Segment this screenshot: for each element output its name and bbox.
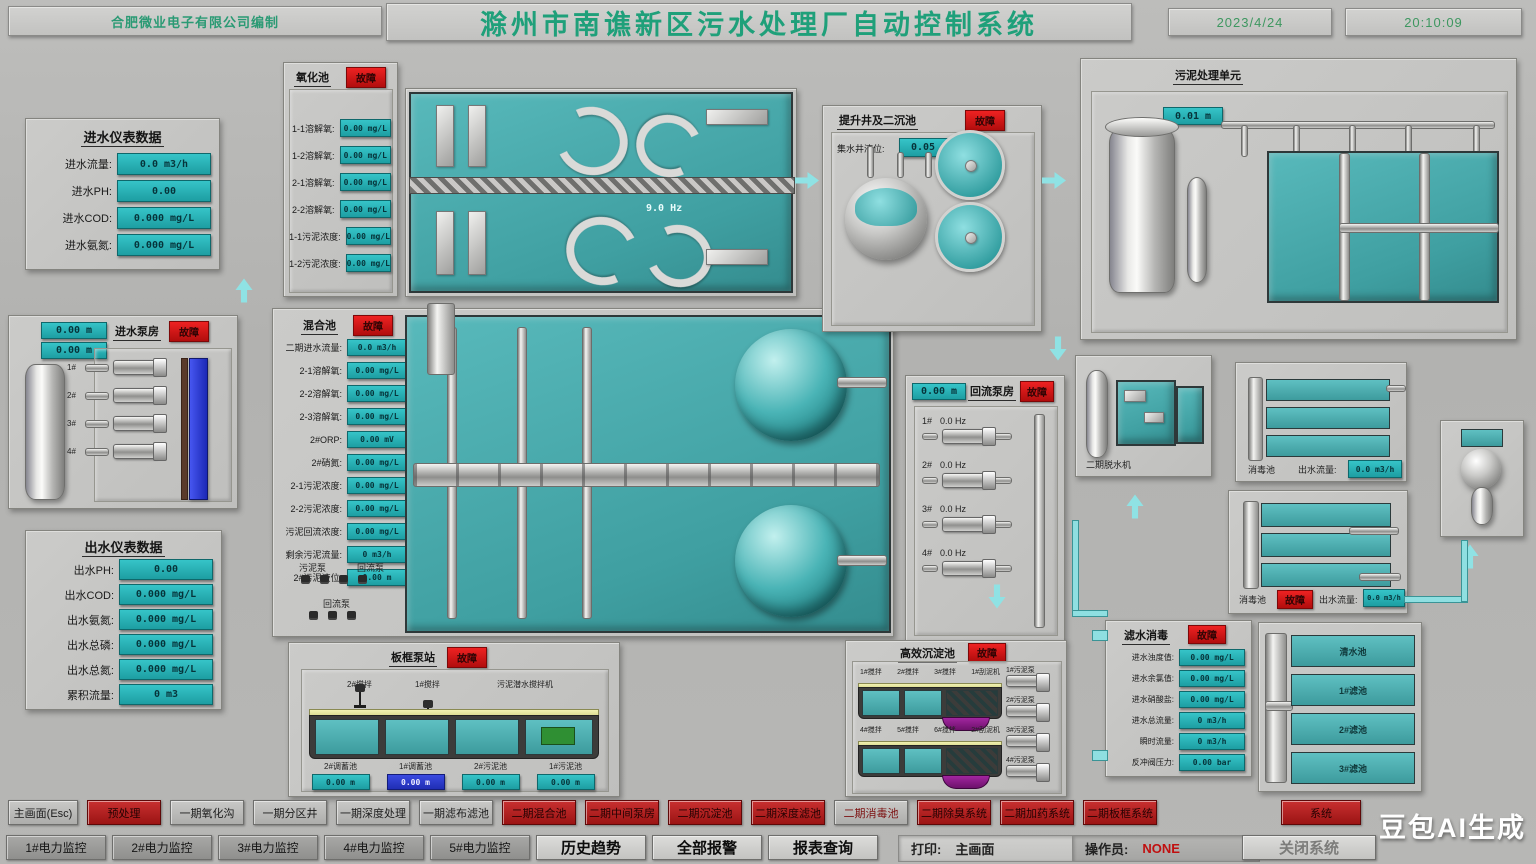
dewatering-tank-2	[1176, 386, 1204, 444]
sphere1-arm-pipe	[837, 377, 887, 388]
pump-number-label: 1#	[922, 416, 932, 426]
pump-icon[interactable]	[1006, 705, 1042, 717]
sludge-silo-lid	[1105, 117, 1179, 137]
disinfection-panel-2: 消毒池 故障 出水流量: 0.0 m3/h	[1228, 490, 1408, 614]
pump-dot-icon[interactable]	[328, 611, 337, 618]
operator-label: 操作员:	[1085, 839, 1128, 858]
pump-icon[interactable]	[113, 388, 159, 403]
pump-freq-label: 0.0 Hz	[940, 460, 966, 470]
meter-row: 出水氨氮: 0.000 mg/L	[34, 609, 213, 630]
pipe-segment	[922, 521, 938, 528]
meter-row: 进水余氯值: 0.00 mg/L	[1110, 670, 1245, 687]
inlet-level-1: 0.00 m	[41, 322, 107, 339]
meter-row: 瞬时流量: 0 m3/h	[1110, 733, 1245, 750]
meter-row: 1-1溶解氧: 0.00 mg/L	[292, 119, 391, 137]
disinfection-status-badge: 故障	[1277, 590, 1313, 609]
frame-station-status-badge: 故障	[447, 647, 487, 668]
tank-level-value: 0.00 m	[387, 774, 445, 790]
meter-row: 2-1溶解氧: 0.00 mg/L	[279, 362, 407, 379]
pump-dot-icon[interactable]	[320, 575, 329, 582]
sedimentation-panel: 高效沉淀池 故障 1#搅拌2#搅拌3#搅拌1#刮泥机 4#搅拌5#搅拌6#搅拌2…	[845, 640, 1067, 797]
mixing-block-panel: 混合池 故障 二期进水流量: 0.0 m3/h 2-1溶解氧: 0.00 mg/…	[272, 308, 894, 637]
meter-value: 0.000 mg/L	[119, 609, 213, 630]
meter-row: 进水硝酸盐: 0.00 mg/L	[1110, 691, 1245, 708]
outflow-meter-panel: 出水仪表数据 出水PH: 0.00 出水COD: 0.000 mg/L 出水氨氮…	[25, 530, 222, 710]
tank1-freq-label: 9.0 Hz	[646, 203, 682, 214]
tank-label: 2#调蓄池	[324, 761, 357, 772]
pump-body	[1471, 487, 1493, 525]
tank-frame-beam	[1339, 223, 1499, 233]
return-pump-row: 1# 0.0 Hz	[922, 416, 1012, 444]
meter-row: 2-1污泥浓度: 0.00 mg/L	[279, 477, 407, 494]
sed-cell	[904, 748, 942, 774]
dewatering-panel: 二期脱水机	[1075, 355, 1212, 477]
weir-plate	[1359, 573, 1401, 581]
sed-cell	[862, 748, 900, 774]
meter-value: 0.00 mg/L	[340, 146, 391, 164]
sedimentation-status-badge: 故障	[968, 643, 1006, 662]
meter-value: 0.0 m3/h	[347, 339, 407, 356]
meter-row: 进水氨氮: 0.000 mg/L	[34, 234, 211, 256]
nav-button[interactable]: 一期分区井	[253, 800, 327, 825]
inlet-pump-row: 2#	[67, 388, 187, 403]
meter-value: 0.00 mg/L	[340, 119, 391, 137]
outflow-panel-title: 出水仪表数据	[82, 540, 164, 557]
mixer-label: 1#搅拌	[415, 679, 440, 690]
meter-value: 0 m3	[119, 684, 213, 705]
machine-part	[1144, 412, 1164, 423]
inlet-pump-rows: 1# 2# 3# 4#	[67, 360, 187, 459]
filter-tank: 1#滤池	[1291, 674, 1415, 706]
pump-icon[interactable]	[113, 360, 159, 375]
pump-number-label: 1#	[67, 363, 81, 372]
tank1-aerator	[468, 211, 486, 275]
cyan-pipe	[1072, 610, 1108, 617]
meter-label: 进水PH:	[72, 183, 112, 199]
sed-lamella-cell	[946, 690, 998, 716]
pump-icon[interactable]	[942, 473, 988, 488]
meter-label: 2-2溶解氧:	[299, 387, 342, 400]
pump-freq-label: 0.0 Hz	[940, 548, 966, 558]
flow-arrow-up	[236, 279, 253, 303]
submersible-mixer-label: 污泥潜水搅拌机	[497, 679, 553, 690]
channel-frame	[1243, 501, 1259, 589]
pump-number-label: 2#	[67, 391, 81, 400]
tank1-aerator	[436, 211, 454, 275]
meter-value: 0.00 mg/L	[347, 362, 407, 379]
frame-tank-readouts: 2#调蓄池 0.00 m 1#调蓄池 0.00 m 2#污泥池 0.00 m 1…	[303, 761, 603, 790]
meter-label: 1-2溶解氧:	[292, 149, 335, 162]
meter-label: 2-2污泥浓度:	[290, 502, 342, 515]
pump-freq-label: 0.0 Hz	[940, 504, 966, 514]
return-header-pipe	[1034, 414, 1045, 628]
aeration-tank-2	[405, 315, 891, 633]
filter-inlet-branch	[1265, 701, 1293, 711]
sed-pump: 1#污泥泵	[1006, 665, 1042, 687]
dewatering-tank	[1116, 380, 1176, 446]
tank-readout: 2#污泥池 0.00 m	[453, 761, 528, 790]
meter-label: 反冲阀压力:	[1132, 757, 1174, 768]
meter-label: 进水硝酸盐:	[1132, 694, 1174, 705]
meter-label: 2-1溶解氧:	[299, 364, 342, 377]
meter-label: 进水余氯值:	[1132, 673, 1174, 684]
meter-row: 进水浊度值: 0.00 mg/L	[1110, 649, 1245, 666]
pump-icon[interactable]	[942, 517, 988, 532]
oxidation-panel: 氧化池 故障 1-1溶解氧: 0.00 mg/L 1-2溶解氧: 0.00 mg…	[283, 62, 398, 297]
meter-value: 0.00 mg/L	[340, 173, 391, 191]
dewatering-label: 二期脱水机	[1086, 458, 1131, 471]
filter-tank: 清水池	[1291, 635, 1415, 667]
meter-label: 污泥回流浓度:	[285, 525, 342, 538]
meter-label: 2#ORP:	[310, 435, 342, 445]
mixer-label: 2#刮泥机	[971, 725, 1000, 735]
nav-button[interactable]: 二期中间泵房	[585, 800, 659, 825]
tank-label: 1#调蓄池	[399, 761, 432, 772]
uv-channel	[1261, 533, 1391, 557]
filter-tank-rows: 清水池 1#滤池 2#滤池 3#滤池	[1291, 635, 1415, 784]
meter-label: 进水流量:	[65, 156, 112, 172]
sed-cell	[862, 690, 900, 716]
pump-icon[interactable]	[1006, 765, 1042, 777]
meter-value: 0.00 mg/L	[347, 523, 407, 540]
meter-label: 出水总磷:	[67, 637, 114, 653]
meter-label: 瞬时流量:	[1140, 736, 1174, 747]
mixer-label: 1#刮泥机	[971, 667, 1000, 677]
mixer-label: 6#搅拌	[934, 725, 956, 735]
sphere2-arm-pipe	[837, 555, 887, 566]
inlet-pump-title: 进水泵房	[113, 323, 161, 341]
print-value: 主画面	[955, 839, 994, 858]
tank1-weir	[706, 249, 768, 265]
inlet-pump-row: 4#	[67, 444, 187, 459]
pump-dot-icon[interactable]	[339, 575, 348, 582]
meter-label: 剩余污泥流量:	[285, 548, 342, 561]
nav-button[interactable]: 全部报警	[652, 835, 762, 860]
filter-info-panel: 滤水消毒 故障 进水浊度值: 0.00 mg/L 进水余氯值: 0.00 mg/…	[1105, 620, 1252, 777]
pump-freq-label: 0.0 Hz	[940, 416, 966, 426]
mixer-label: 5#搅拌	[897, 725, 919, 735]
clarifier-center	[965, 160, 977, 172]
meter-value: 0.00 mV	[347, 431, 407, 448]
nav-button[interactable]: 一期氧化沟	[170, 800, 244, 825]
return-pump-label-2: 回流泵	[323, 597, 350, 610]
nav-button[interactable]: 1#电力监控	[6, 835, 106, 860]
tank-cell	[315, 719, 379, 755]
pump-icon[interactable]	[1006, 735, 1042, 747]
sludge-pump-icons	[301, 575, 367, 582]
meter-label: 进水浊度值:	[1132, 652, 1174, 663]
pump-number-label: 3#	[922, 504, 932, 514]
time-box: 20:10:09	[1345, 8, 1522, 36]
pump-icon[interactable]	[942, 561, 988, 576]
meter-value: 0.00 bar	[1179, 754, 1245, 771]
submersible-mixer-box	[541, 727, 575, 745]
tank1-walkway	[409, 177, 795, 194]
nav-button[interactable]: 4#电力监控	[324, 835, 424, 860]
nav-button[interactable]: 5#电力监控	[430, 835, 530, 860]
flow-label: 出水流量:	[1319, 593, 1358, 606]
flow-value: 0.0 m3/h	[1363, 589, 1405, 607]
tank-readout: 1#污泥池 0.00 m	[528, 761, 603, 790]
weir-plate	[1349, 527, 1399, 535]
pump-icon[interactable]	[113, 416, 159, 431]
cyan-pipe-stub	[1092, 750, 1108, 761]
pump-icon[interactable]	[942, 429, 988, 444]
probe-pipe	[867, 146, 874, 178]
meter-label: 2#硝氮:	[311, 456, 342, 469]
pump-dot-icon[interactable]	[309, 611, 318, 618]
sludge-pump-label: 污泥泵	[299, 561, 326, 574]
filter-info-title: 滤水消毒	[1122, 627, 1170, 645]
level-gauge-bar	[189, 358, 208, 500]
sludge-silo	[1109, 129, 1175, 293]
meter-row: 出水总磷: 0.000 mg/L	[34, 634, 213, 655]
sludge-unit-panel: 污泥处理单元 0.01 m	[1080, 58, 1517, 340]
oxidation-status-badge: 故障	[346, 67, 386, 88]
nav-button[interactable]: 2#电力监控	[112, 835, 212, 860]
grit-title: 提升井及二沉池	[837, 112, 918, 130]
meter-value: 0 m3/h	[1179, 733, 1245, 750]
meter-row: 出水总氮: 0.000 mg/L	[34, 659, 213, 680]
frame-pump-station-panel: 板框泵站 故障 2#搅拌 1#搅拌 污泥潜水搅拌机 2#调蓄池 0.00 m 1…	[288, 642, 620, 797]
meter-value: 0.00	[119, 559, 213, 580]
filter-info-rows: 进水浊度值: 0.00 mg/L 进水余氯值: 0.00 mg/L 进水硝酸盐:…	[1110, 649, 1245, 771]
inlet-pump-panel: 0.00 m 0.00 m 进水泵房 故障 1# 2# 3#	[8, 315, 238, 509]
meter-row: 2#ORP: 0.00 mV	[279, 431, 407, 448]
disinfection-panel-1: 消毒池 出水流量: 0.0 m3/h	[1235, 362, 1407, 482]
nav-button[interactable]: 二期消毒池	[834, 800, 908, 825]
pool-label: 消毒池	[1239, 593, 1266, 606]
mixing-title: 混合池	[301, 317, 338, 335]
frame-station-title: 板框泵站	[389, 649, 437, 667]
nav-button[interactable]: 一期滤布滤池	[419, 800, 493, 825]
meter-label: 累积流量:	[67, 687, 114, 703]
meter-value: 0.00 mg/L	[347, 408, 407, 425]
filter-tank: 3#滤池	[1291, 752, 1415, 784]
outlet-stub-pipe	[1386, 385, 1406, 392]
mixer-label: 1#搅拌	[860, 667, 882, 677]
filter-info-status-badge: 故障	[1188, 625, 1226, 644]
sed-lamella-cell	[946, 748, 998, 774]
pipe-segment	[85, 364, 109, 372]
meter-row: 反冲阀压力: 0.00 bar	[1110, 754, 1245, 771]
meter-row: 出水COD: 0.000 mg/L	[34, 584, 213, 605]
meter-row: 2#硝氮: 0.00 mg/L	[279, 454, 407, 471]
oxidation-rows: 1-1溶解氧: 0.00 mg/L 1-2溶解氧: 0.00 mg/L 2-1溶…	[292, 119, 391, 272]
pump-dot-icon[interactable]	[347, 611, 356, 618]
pump-dot-icon[interactable]	[301, 575, 310, 582]
nav-button[interactable]: 预处理	[87, 800, 161, 825]
sed-row2-labels: 4#搅拌5#搅拌6#搅拌2#刮泥机	[860, 725, 1000, 735]
pipe-segment	[922, 477, 938, 484]
outflow-rows: 出水PH: 0.00 出水COD: 0.000 mg/L 出水氨氮: 0.000…	[34, 559, 213, 705]
return-pump-title: 回流泵房	[968, 383, 1016, 401]
date-box: 2023/4/24	[1168, 8, 1332, 36]
meter-label: 1-1溶解氧:	[292, 122, 335, 135]
meter-label: 2-3溶解氧:	[299, 410, 342, 423]
meter-row: 累积流量: 0 m3	[34, 684, 213, 705]
pump-number-label: 2#	[922, 460, 932, 470]
flow-arrow-down	[1050, 337, 1067, 361]
close-system-button[interactable]: 关闭系统	[1242, 835, 1376, 860]
tank1-aerator	[436, 105, 454, 167]
meter-row: 进水流量: 0.0 m3/h	[34, 153, 211, 175]
meter-value: 0.00 mg/L	[1179, 691, 1245, 708]
meter-row: 2-2溶解氧: 0.00 mg/L	[279, 385, 407, 402]
return-pump-label: 回流泵	[357, 561, 384, 574]
mixer-label: 3#搅拌	[934, 667, 956, 677]
mixer-label: 4#搅拌	[860, 725, 882, 735]
grit-status-badge: 故障	[965, 110, 1005, 131]
uv-channel	[1266, 407, 1390, 429]
edge-pump-panel	[1440, 420, 1524, 537]
mixing-status-badge: 故障	[353, 315, 393, 336]
return-pump-row: 2# 0.0 Hz	[922, 460, 1012, 488]
uv-channel	[1261, 503, 1391, 527]
pump-dot-icon[interactable]	[358, 575, 367, 582]
tank-cell	[455, 719, 519, 755]
meter-value: 0.00 mg/L	[347, 454, 407, 471]
flow-arrow-right	[795, 172, 819, 189]
meter-label: 出水总氮:	[67, 662, 114, 678]
tank-level-value: 0.00 m	[537, 774, 595, 790]
page-title: 滁州市南谯新区污水处理厂自动控制系统	[480, 3, 1038, 42]
nav-button[interactable]: 3#电力监控	[218, 835, 318, 860]
pipe-segment	[85, 448, 109, 456]
cyan-pipe	[1072, 520, 1079, 617]
sludge-unit-title: 污泥处理单元	[1173, 67, 1243, 85]
meter-row: 2-2污泥浓度: 0.00 mg/L	[279, 500, 407, 517]
tank-cell	[385, 719, 449, 755]
nav-button[interactable]: 二期混合池	[502, 800, 576, 825]
nav-button[interactable]: 二期沉淀池	[668, 800, 742, 825]
grit-dome-water	[855, 188, 917, 226]
grit-dome	[845, 178, 927, 260]
return-pump-icons	[309, 611, 356, 618]
meter-label: 2-1污泥浓度:	[290, 479, 342, 492]
channel-frame	[1248, 377, 1263, 461]
clarifier-2	[935, 202, 1005, 272]
tank-readout: 2#调蓄池 0.00 m	[303, 761, 378, 790]
dewatering-pump-column	[1086, 370, 1108, 458]
meter-row: 出水PH: 0.00	[34, 559, 213, 580]
digester-sphere-1	[735, 329, 847, 441]
sludge-drop-pipe	[1241, 125, 1248, 157]
sed-pump-column: 1#污泥泵 2#污泥泵 3#污泥泵 4#污泥泵	[1006, 665, 1042, 777]
pump-number-label: 3#	[67, 419, 81, 428]
tank-readout: 1#调蓄池 0.00 m	[378, 761, 453, 790]
meter-value: 0 m3/h	[1179, 712, 1245, 729]
meter-row: 1-1污泥浓度: 0.00 mg/L	[292, 227, 391, 245]
mixer-icon[interactable]	[359, 691, 361, 707]
meter-label: 二期进水流量:	[285, 341, 342, 354]
filter-tank-label: 清水池	[1339, 645, 1366, 658]
nav-button[interactable]: 二期加药系统	[1000, 800, 1074, 825]
nav-button[interactable]: 二期深度滤池	[751, 800, 825, 825]
meter-value: 0.00 mg/L	[347, 477, 407, 494]
company-box: 合肥微业电子有限公司编制	[8, 6, 382, 36]
tank-label: 2#污泥池	[474, 761, 507, 772]
pump-label: 1#污泥泵	[1006, 665, 1035, 675]
cyan-pipe-stub	[1092, 630, 1108, 641]
machine-part	[1124, 390, 1146, 402]
nav-button[interactable]: 主画面(Esc)	[8, 800, 78, 825]
nav-button[interactable]: 报表查询	[768, 835, 878, 860]
meter-value: 0.00	[117, 180, 211, 202]
tank-level-value: 0.00 m	[462, 774, 520, 790]
sludge-holding-tank	[1267, 151, 1499, 303]
pipe-segment	[922, 565, 938, 572]
oxidation-title: 氧化池	[294, 69, 331, 87]
nav-button[interactable]: 历史趋势	[536, 835, 646, 860]
sed-cell	[904, 690, 942, 716]
sed-pump: 4#污泥泵	[1006, 755, 1042, 777]
pump-label: 3#污泥泵	[1006, 725, 1035, 735]
time-label: 20:10:09	[1404, 15, 1463, 30]
filter-tank-label: 3#滤池	[1339, 762, 1367, 775]
meter-value: 0.000 mg/L	[119, 634, 213, 655]
meter-value: 0.000 mg/L	[119, 584, 213, 605]
sludge-top-pipe	[1221, 121, 1495, 129]
uv-channel	[1266, 435, 1390, 457]
sludge-feed-column	[1187, 177, 1207, 283]
meter-row: 2-3溶解氧: 0.00 mg/L	[279, 408, 407, 425]
print-label: 打印:	[911, 839, 941, 858]
meter-label: 2-1溶解氧:	[292, 176, 335, 189]
meter-value: 0.000 mg/L	[117, 234, 211, 256]
title-box: 滁州市南谯新区污水处理厂自动控制系统	[386, 3, 1132, 41]
tank-level-value: 0.00 m	[312, 774, 370, 790]
flow-arrow-right	[1042, 172, 1066, 189]
tank1-weir	[706, 109, 768, 125]
return-pump-row: 3# 0.0 Hz	[922, 504, 1012, 532]
digester-sphere-2	[735, 505, 847, 617]
clarifier-center	[965, 232, 977, 244]
return-pump-panel: 0.00 m 回流泵房 故障 1# 0.0 Hz 2# 0.0 Hz	[905, 375, 1065, 642]
clarifier-1	[935, 130, 1005, 200]
meter-label: 1-1污泥浓度:	[289, 230, 341, 243]
meter-value: 0.00 mg/L	[347, 500, 407, 517]
cyan-pipe	[1404, 596, 1468, 603]
meter-row: 1-2污泥浓度: 0.00 mg/L	[292, 254, 391, 272]
meter-row: 2-2溶解氧: 0.00 mg/L	[292, 200, 391, 218]
meter-value: 0.000 mg/L	[117, 207, 211, 229]
pump-number-label: 4#	[67, 447, 81, 456]
meter-label: 进水总流量:	[1132, 715, 1174, 726]
sed-hopper	[942, 775, 990, 789]
tank2-main-pipe	[413, 463, 880, 487]
meter-row: 2-1溶解氧: 0.00 mg/L	[292, 173, 391, 191]
meter-label: 出水COD:	[65, 587, 115, 603]
aeration-tank-1: 9.0 Hz	[405, 88, 797, 297]
filter-tank-label: 1#滤池	[1339, 684, 1367, 697]
probe-pipe	[897, 152, 904, 178]
probe-pipe	[925, 152, 932, 178]
nav-button[interactable]: 一期深度处理	[336, 800, 410, 825]
pump-icon[interactable]	[113, 444, 159, 459]
nav-button[interactable]: 二期板框系统	[1083, 800, 1157, 825]
pump-icon[interactable]	[1006, 675, 1042, 687]
gate-frame	[181, 358, 188, 500]
tank1-aerator	[468, 105, 486, 167]
nav-button[interactable]: 二期除臭系统	[917, 800, 991, 825]
operator-value: NONE	[1142, 841, 1180, 856]
meter-label: 2-2溶解氧:	[292, 203, 335, 216]
meter-value: 0.00 mg/L	[346, 254, 391, 272]
print-panel: 打印: 主画面	[898, 835, 1090, 862]
system-button[interactable]: 系统	[1281, 800, 1361, 825]
meter-value: 0.00 mg/L	[347, 385, 407, 402]
